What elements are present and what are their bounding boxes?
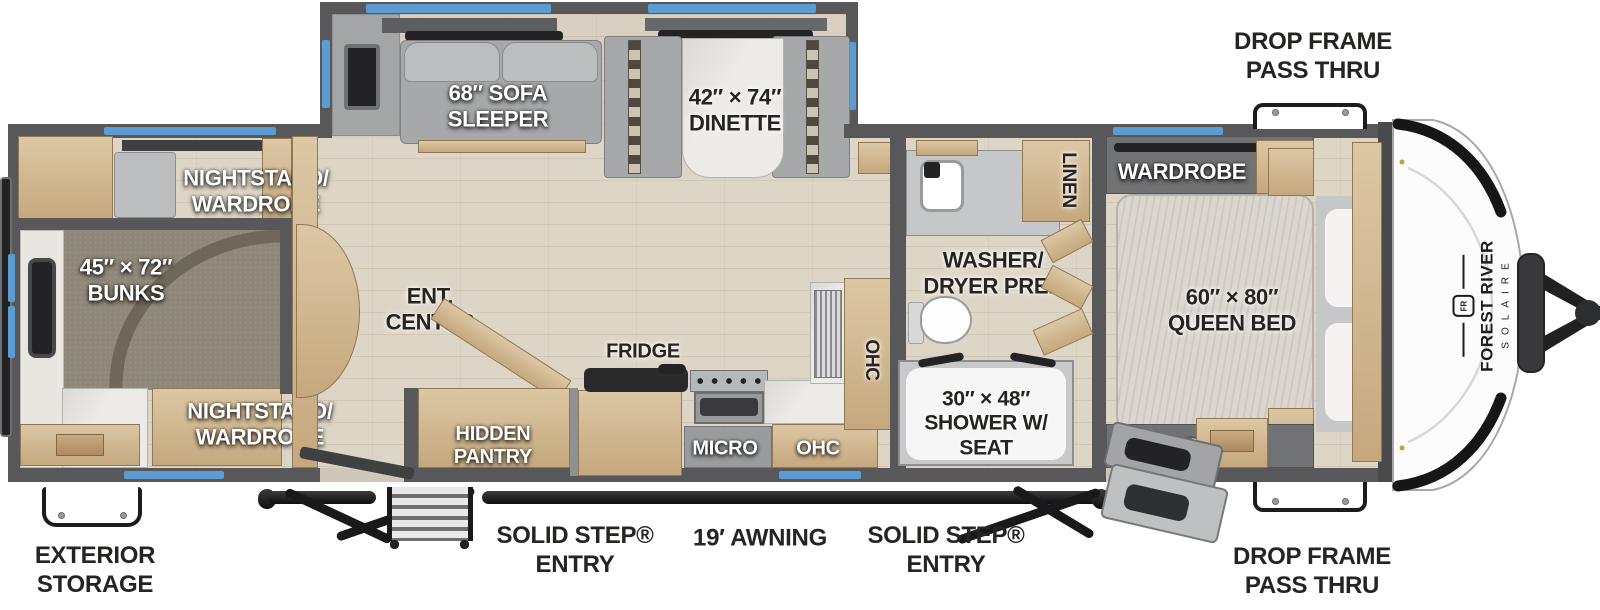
drop-frame-bracket-top (1253, 103, 1367, 129)
sofa-back-cushion (502, 42, 598, 82)
door-window (1122, 483, 1190, 523)
ohc-upper-label: OHC (860, 339, 882, 380)
window (779, 471, 861, 479)
drop-frame-top-label: DROP FRAME PASS THRU (1234, 28, 1392, 86)
window (124, 471, 224, 479)
hidden-pantry-label: HIDDEN PANTRY (454, 423, 532, 469)
hitch (1510, 248, 1600, 378)
bunkroom-nightstand-slot (56, 434, 104, 456)
window (8, 254, 15, 302)
screw (1272, 498, 1279, 505)
awning-label: 19′ AWNING (693, 525, 827, 554)
oven-window (700, 398, 758, 416)
step-foot (460, 540, 469, 549)
bunk-window (28, 258, 56, 358)
dinette-bench-edge (806, 40, 819, 174)
screw (1342, 109, 1349, 116)
window (8, 306, 15, 358)
bunkroom-tv-bar (122, 140, 274, 151)
exterior-storage-door (42, 487, 142, 527)
range-cooktop (690, 370, 768, 392)
window (104, 127, 276, 135)
queen-bed-label: 60″ × 80″ QUEEN BED (1168, 284, 1296, 335)
brand-logo-row: FR (1453, 255, 1475, 357)
fridge (578, 390, 682, 476)
window (1113, 127, 1223, 135)
wardrobe-rail (1114, 143, 1262, 152)
ohc-lower-label: OHC (796, 437, 840, 460)
micro-label: MICRO (692, 437, 757, 460)
wardrobe-top-label: WARDROBE (1118, 159, 1246, 185)
entry-right-label: SOLID STEP® ENTRY (867, 522, 1024, 580)
floorplan: 68″ SOFA SLEEPER 42″ × 74″ DINETTE NIGHT… (0, 0, 1600, 610)
fridge-label: FRIDGE (606, 340, 680, 363)
entry-left-label: SOLID STEP® ENTRY (496, 522, 653, 580)
drop-frame-bottom-label: DROP FRAME PASS THRU (1233, 543, 1391, 601)
shower-label: 30″ × 48″ SHOWER W/ SEAT (924, 387, 1047, 460)
window (648, 4, 816, 13)
awning-bar (482, 491, 1098, 504)
bunkroom-upper-wardrobe (18, 136, 113, 220)
pantry-wall-stub (404, 388, 418, 468)
bunks-label: 45″ × 72″ BUNKS (80, 254, 172, 305)
window (366, 4, 551, 13)
drop-frame-bracket-bottom (1253, 482, 1367, 512)
fridge-side (570, 388, 578, 476)
brand-rule (1463, 323, 1465, 357)
brand-rule (1463, 255, 1465, 289)
dinette-bench-edge (628, 40, 641, 174)
sofa-window (344, 44, 380, 110)
bathroom-right-wall (1092, 136, 1106, 468)
sofa-label: 68″ SOFA SLEEPER (448, 80, 549, 131)
window (322, 40, 330, 108)
washer-dryer-label: WASHER/ DRYER PREP (923, 247, 1062, 298)
step-foot (390, 540, 399, 549)
bunkroom-divider-wall (14, 218, 292, 230)
kitchen-vent (814, 290, 842, 378)
forest-river-logo-icon: FR (1453, 295, 1475, 317)
linen-label: LINEN (1057, 152, 1079, 208)
dinette-label: 42″ × 74″ DINETTE (689, 84, 781, 135)
screw (1272, 109, 1279, 116)
screw (58, 512, 65, 519)
brand-name: FOREST RIVER (1478, 240, 1498, 372)
dinette-bench (604, 36, 682, 178)
entry-steps-left (387, 487, 473, 541)
sofa-back-cushion (404, 42, 500, 82)
bunkroom-upper-pad (114, 152, 176, 218)
bed-frame-block (1268, 148, 1314, 196)
toilet (920, 296, 972, 344)
faucet (924, 162, 940, 178)
exterior-storage-label: EXTERIOR STORAGE (35, 542, 155, 600)
sofa-base (418, 140, 586, 153)
screw (1342, 498, 1349, 505)
screw (120, 512, 127, 519)
brand-mark: FR FOREST RIVER SOLAIRE (1453, 240, 1512, 372)
awning-bar (268, 491, 376, 504)
bathroom-shelf (916, 140, 978, 156)
fridge-handle (658, 364, 686, 374)
